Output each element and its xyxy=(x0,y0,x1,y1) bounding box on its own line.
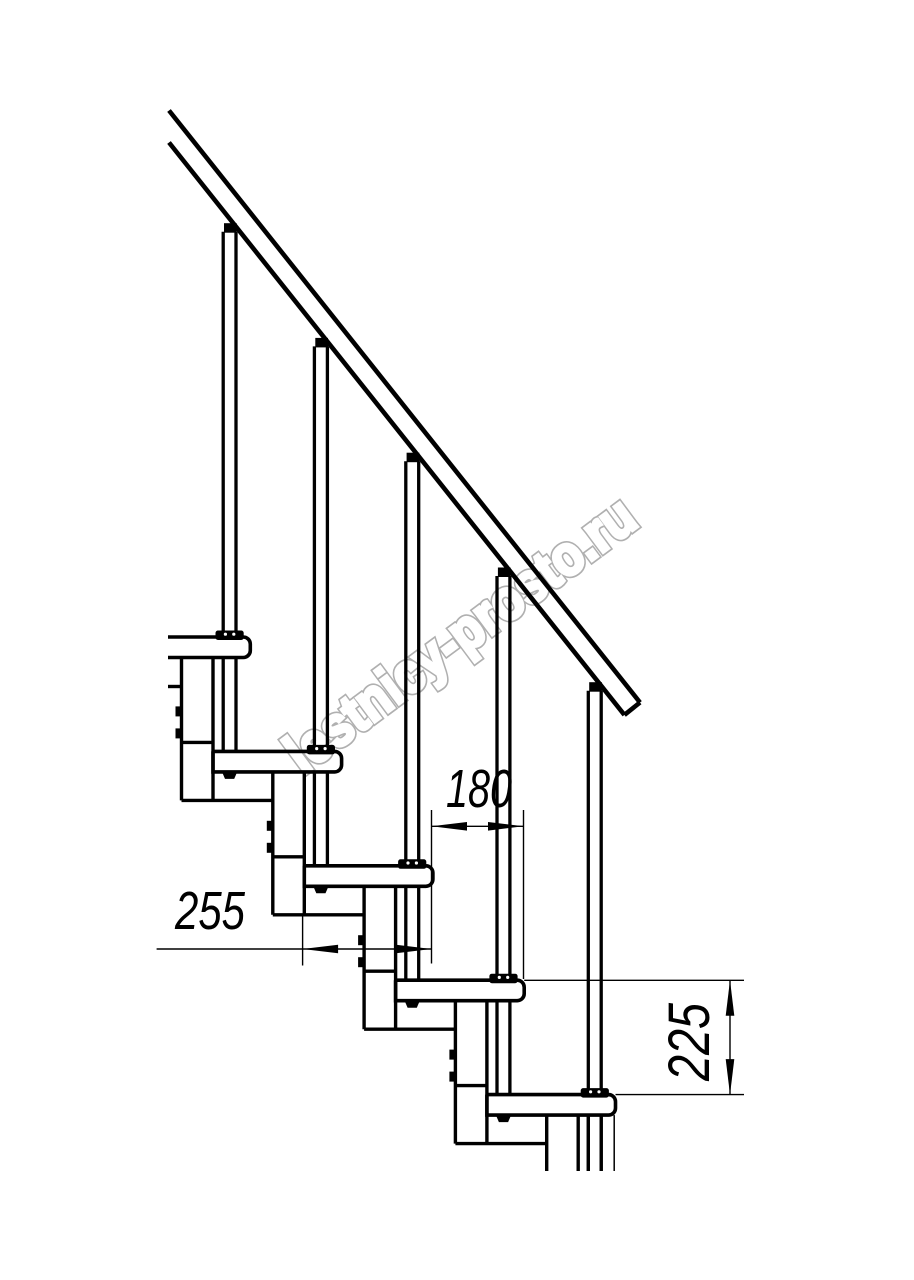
svg-text:225: 225 xyxy=(657,1002,722,1081)
svg-text:180: 180 xyxy=(446,759,512,819)
svg-text:255: 255 xyxy=(174,881,246,941)
